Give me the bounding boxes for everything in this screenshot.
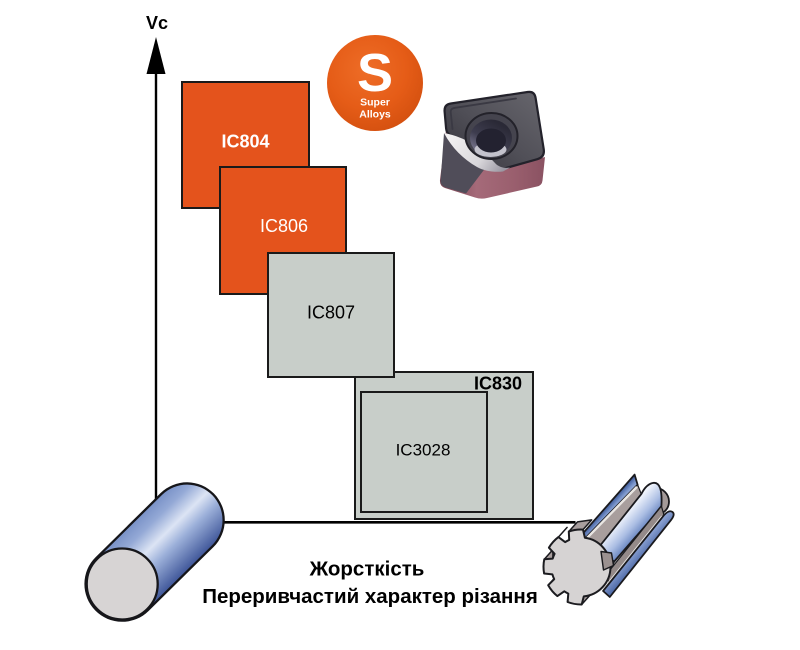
svg-text:Alloys: Alloys — [359, 109, 391, 121]
svg-text:IC830: IC830 — [474, 374, 522, 394]
svg-text:Vc: Vc — [146, 13, 168, 33]
svg-text:IC806: IC806 — [260, 216, 308, 236]
svg-text:IC804: IC804 — [221, 132, 269, 152]
svg-text:S: S — [357, 43, 393, 103]
svg-text:Super: Super — [360, 97, 390, 109]
svg-text:IC807: IC807 — [307, 303, 355, 323]
svg-text:IC3028: IC3028 — [396, 441, 451, 460]
svg-text:Переривчастий характер різання: Переривчастий характер різання — [202, 585, 538, 608]
svg-text:Жорсткість: Жорсткість — [309, 558, 425, 581]
